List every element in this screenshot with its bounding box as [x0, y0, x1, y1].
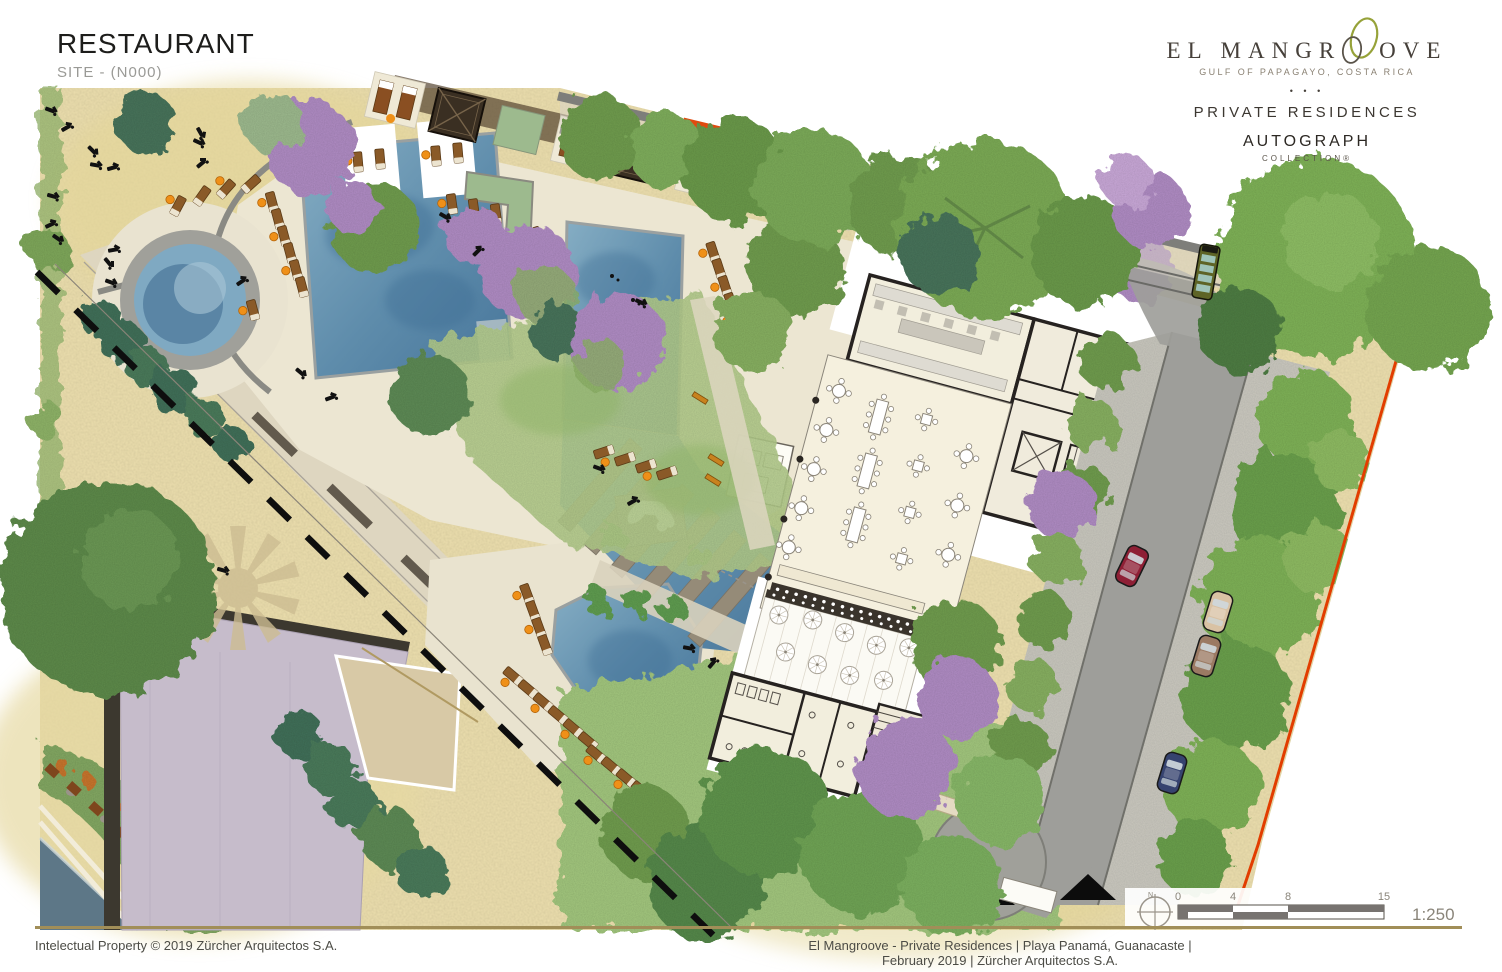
brand-collection: COLLECTION®	[1262, 154, 1352, 163]
brand-separator: • • •	[1290, 86, 1324, 96]
scale-tick-4: 4	[1230, 891, 1236, 903]
north-label: N	[1148, 892, 1153, 899]
brand-residences: PRIVATE RESIDENCES	[1194, 104, 1421, 121]
scale-tick-0: 0	[1175, 891, 1181, 903]
tree	[713, 292, 793, 372]
title-block: RESTAURANT SITE - (N000)	[57, 30, 255, 81]
scale-ratio: 1:250	[1412, 905, 1455, 924]
scale-tick-8: 8	[1285, 891, 1291, 903]
footer-project-info: El Mangroove - Private Residences | Play…	[790, 938, 1210, 968]
scale-tick-15: 15	[1378, 891, 1390, 903]
bougainvillea-tree	[1028, 471, 1096, 539]
wordmark-right: OVE	[1379, 38, 1447, 64]
brand-block: EL MANGR OVE GULF OF PAPAGAYO, COSTA RIC…	[1154, 16, 1460, 163]
brand-location: GULF OF PAPAGAYO, COSTA RICA	[1199, 67, 1415, 77]
drawing-sheet: N 0 4 8 15 1:250 RESTAURANT SITE - (N000…	[0, 0, 1502, 972]
scale-bar: N 0 4 8 15 1:250	[1125, 888, 1465, 930]
brand-wordmark: EL MANGR OVE	[1167, 16, 1448, 64]
sheet-subtitle: SITE - (N000)	[57, 64, 255, 81]
brand-autograph: AUTOGRAPH	[1243, 133, 1371, 151]
sheet-title: RESTAURANT	[57, 30, 255, 58]
footer-copyright: Intelectual Property © 2019 Zürcher Arqu…	[35, 938, 337, 953]
wordmark-left: EL MANGR	[1167, 38, 1342, 64]
double-o-logo-icon	[1337, 16, 1381, 66]
footer-rule	[35, 926, 1462, 929]
